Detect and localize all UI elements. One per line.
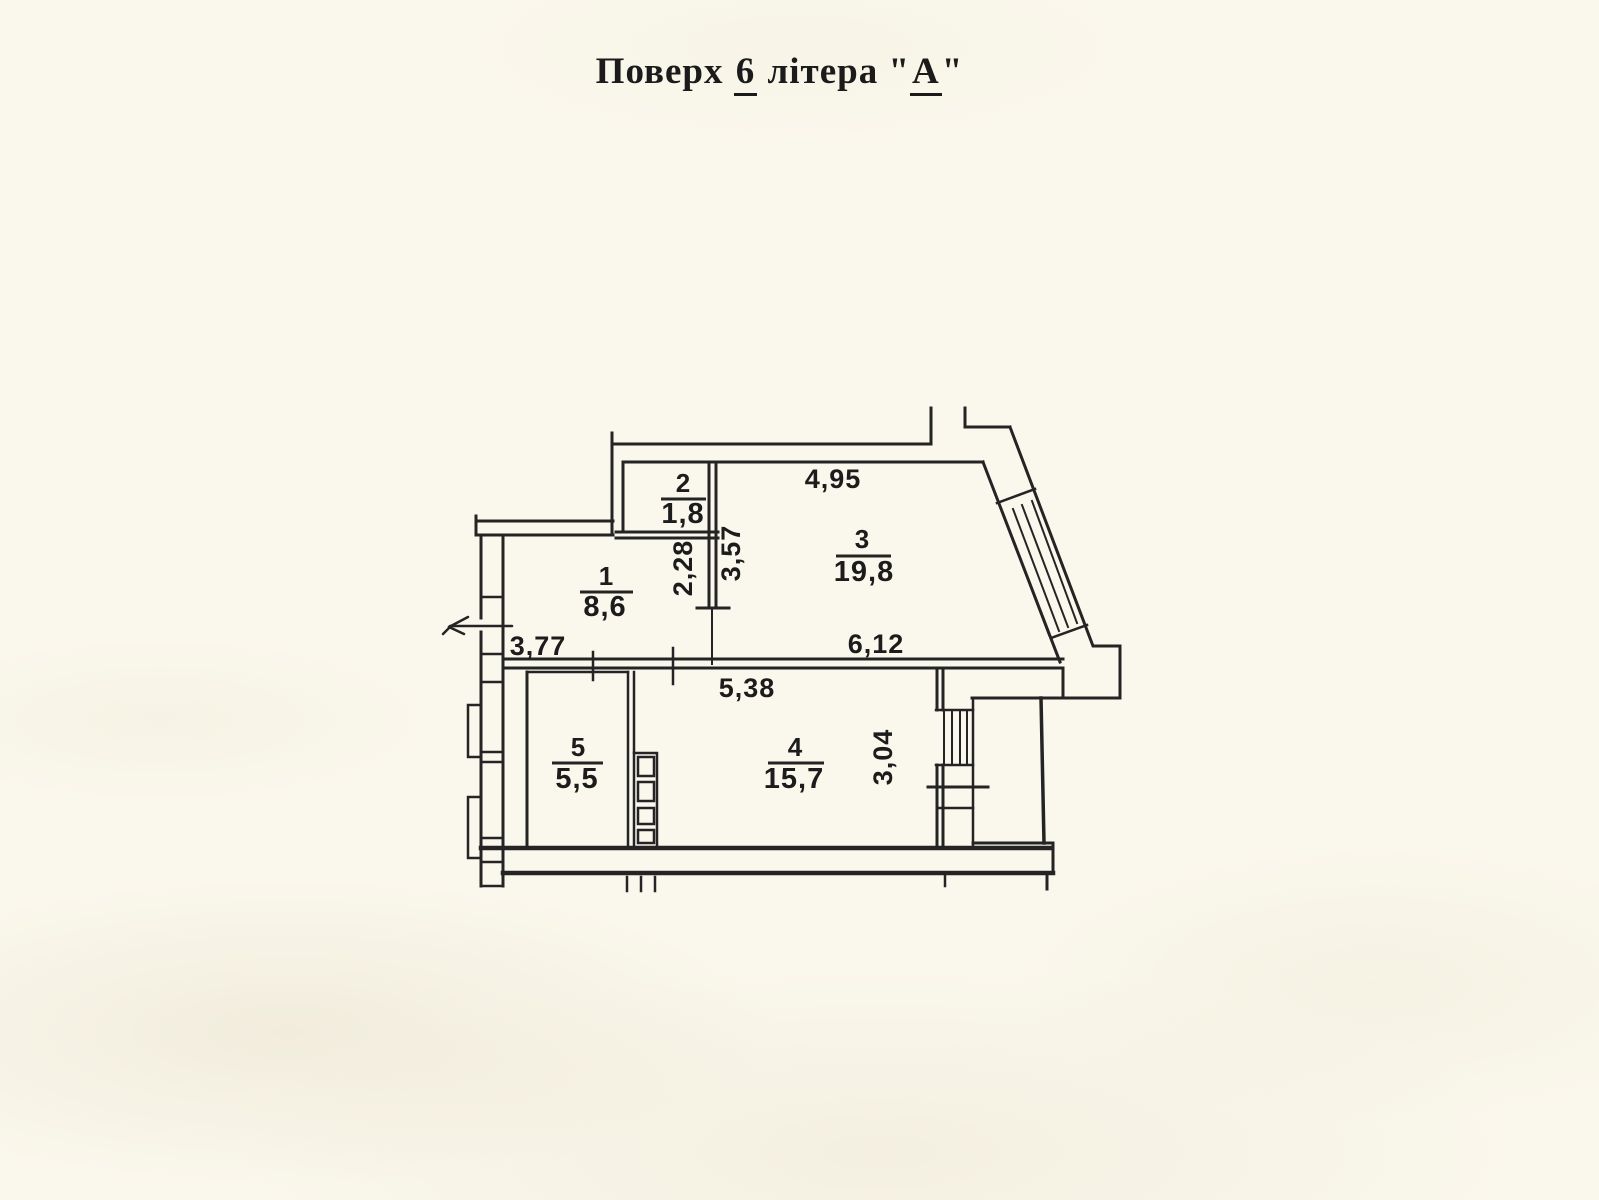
dim-room3-bottom-width: 6,12 — [848, 629, 905, 659]
room-2-area: 1,8 — [661, 498, 704, 530]
wall-divider-room1-room3 — [709, 462, 716, 608]
title-word-letter: літера — [768, 51, 879, 92]
wall-bottom-ticks — [627, 873, 945, 891]
wall-top-opening-right-jamb — [965, 408, 1010, 427]
wall-room1-top — [476, 516, 613, 535]
wall-middle — [503, 659, 1063, 668]
room-labels: 2 1,8 3 19,8 1 8,6 5 5,5 4 15,7 — [552, 468, 894, 795]
wall-left-panel-joints — [481, 597, 503, 886]
title-close-quote: " — [942, 51, 964, 92]
title-letter: А — [910, 51, 942, 96]
page-title: Поверх 6 літера "А" — [0, 50, 1579, 93]
dim-room3-left-height: 3,57 — [716, 525, 746, 582]
room-3-number: 3 — [855, 524, 869, 554]
room-5-area: 5,5 — [555, 763, 598, 795]
wall-room5-right — [628, 672, 634, 847]
title-floor-number: 6 — [734, 51, 758, 96]
floor-plan: 2 1,8 3 19,8 1 8,6 5 5,5 4 15,7 4,95 3,5… — [430, 370, 1140, 900]
room-3-area: 19,8 — [834, 556, 894, 588]
room-2-number: 2 — [676, 468, 690, 498]
vent-shaft-icon — [634, 753, 657, 847]
wall-room2-bottom — [616, 532, 718, 538]
wall-loggia-right — [1041, 698, 1044, 843]
room4-window-icon — [928, 668, 988, 847]
title-word-floor: Поверх — [596, 51, 724, 92]
floor-plan-drawing: 2 1,8 3 19,8 1 8,6 5 5,5 4 15,7 4,95 3,5… — [430, 370, 1140, 900]
room-4-area: 15,7 — [764, 763, 824, 795]
room-1-area: 8,6 — [583, 591, 626, 623]
dim-room4-right-height: 3,04 — [868, 729, 898, 786]
room-1-number: 1 — [599, 561, 613, 591]
title-open-quote: " — [888, 51, 910, 92]
room-5-number: 5 — [571, 732, 585, 762]
dim-room3-top-width: 4,95 — [805, 464, 862, 494]
dim-room1-bottom-width: 3,77 — [510, 631, 567, 661]
dimension-labels: 4,95 3,57 2,28 3,77 6,12 5,38 3,04 — [510, 464, 905, 785]
wall-left-pilaster-1 — [468, 705, 481, 757]
dim-room4-top-width: 5,38 — [719, 673, 776, 703]
wall-diagonal-outer — [972, 427, 1120, 698]
dim-room1-right-height: 2,28 — [668, 540, 698, 597]
room-4-number: 4 — [788, 732, 803, 762]
